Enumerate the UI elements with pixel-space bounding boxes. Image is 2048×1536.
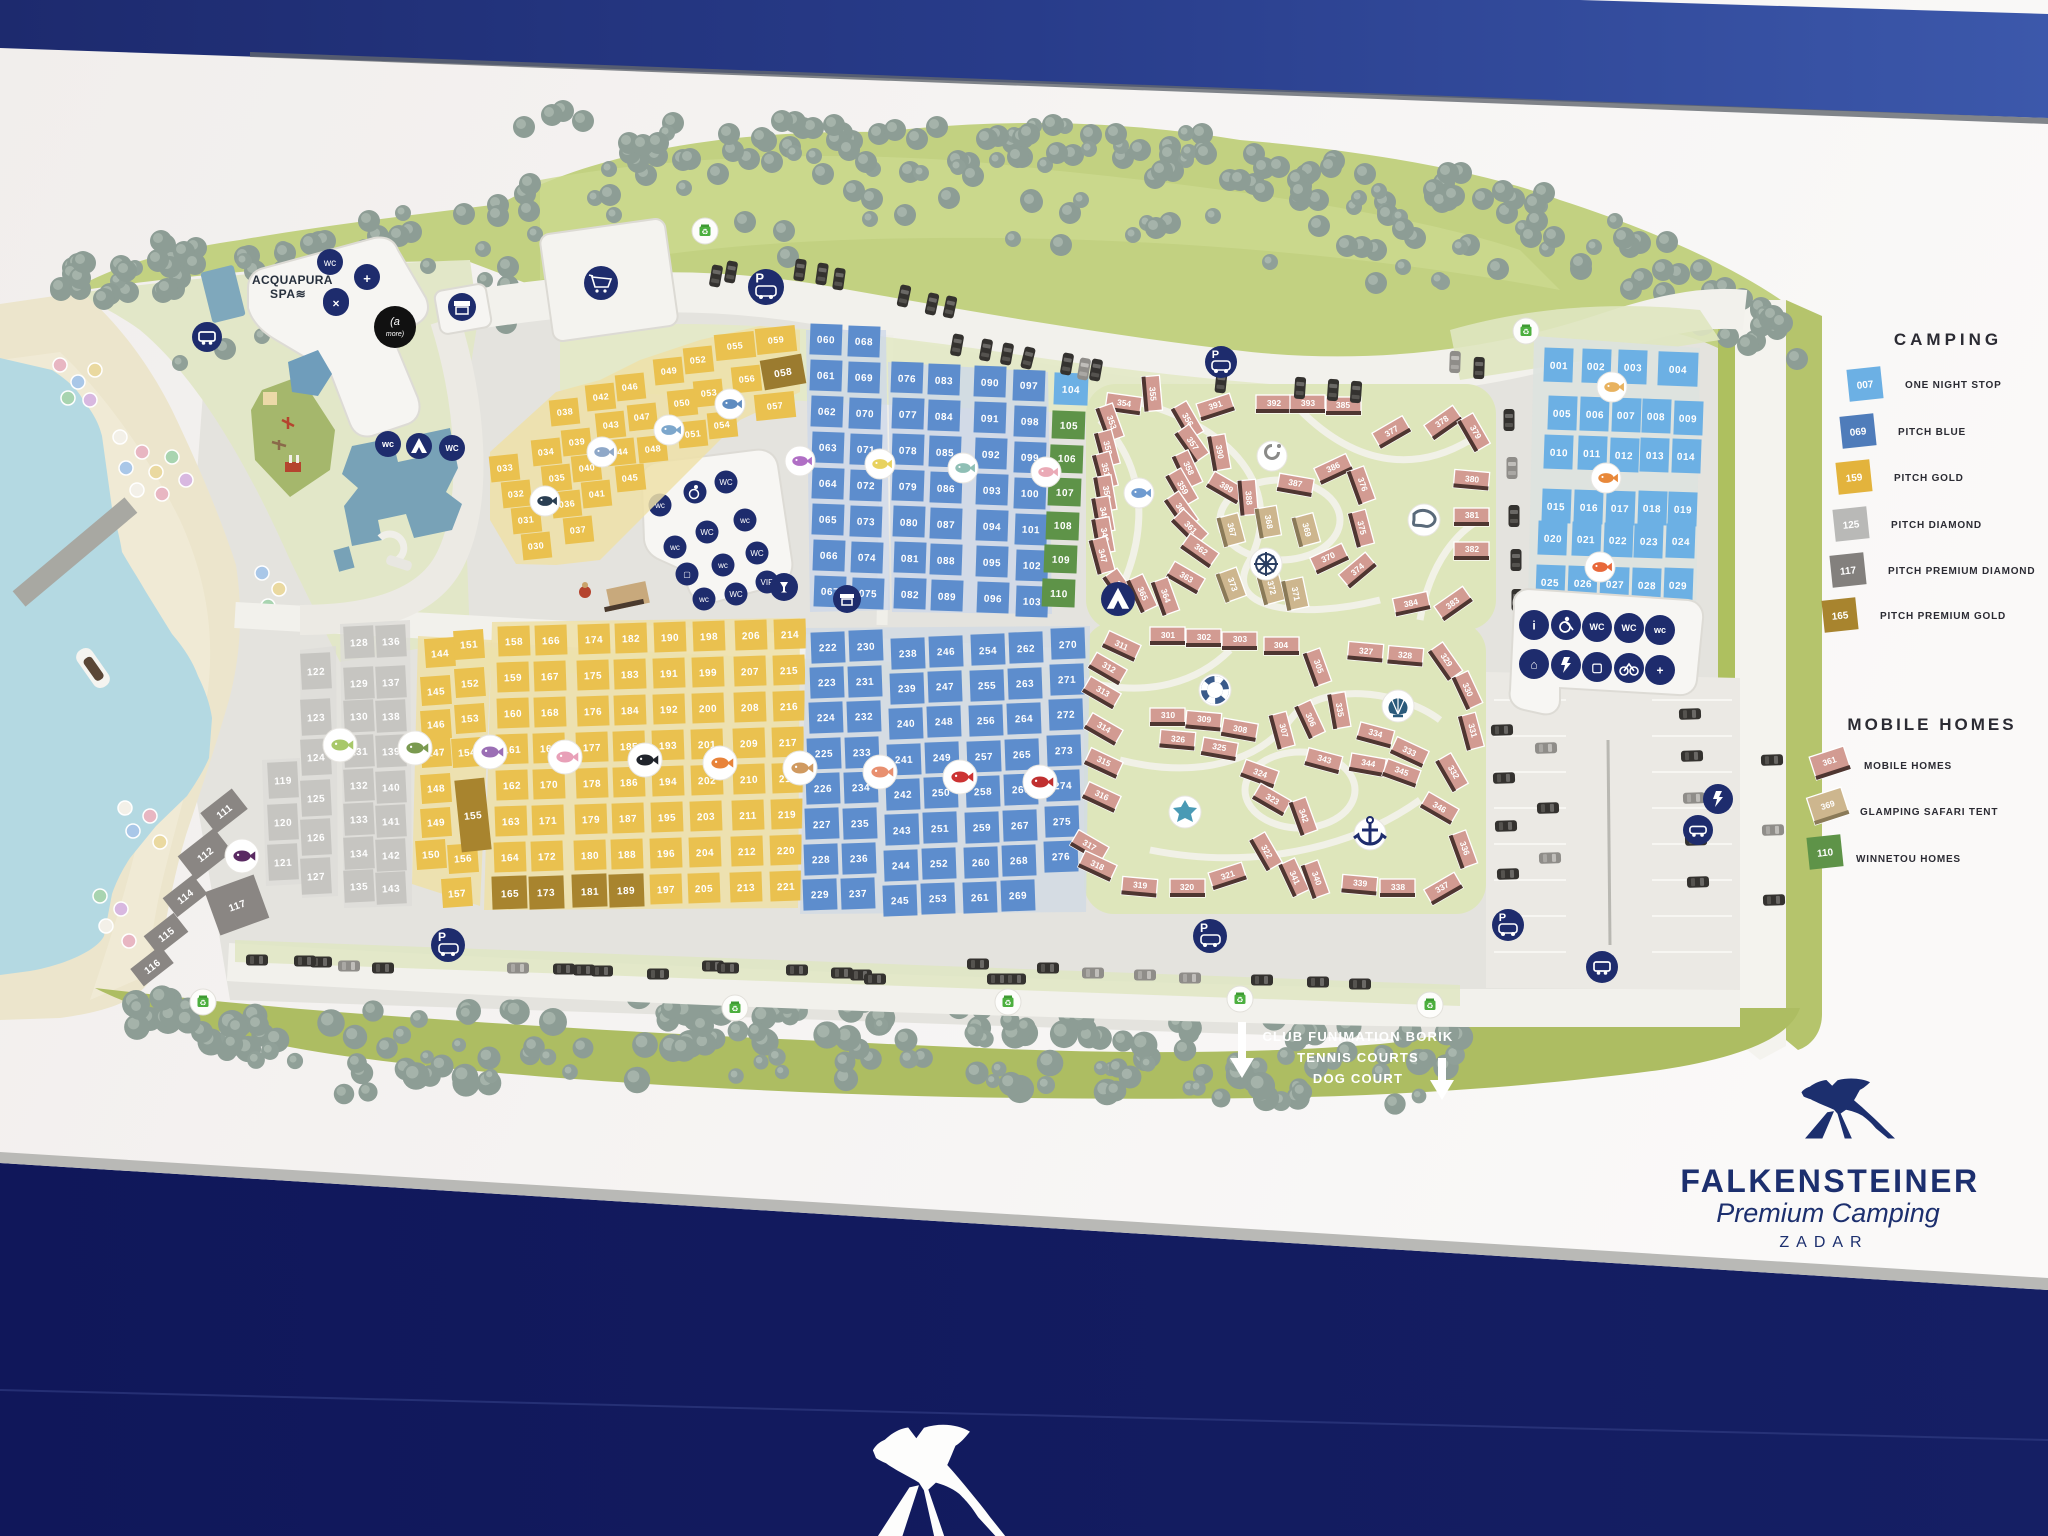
svg-text:122: 122 bbox=[307, 667, 326, 679]
svg-text:059: 059 bbox=[767, 334, 784, 346]
svg-text:304: 304 bbox=[1274, 640, 1288, 650]
svg-text:105: 105 bbox=[1060, 421, 1079, 433]
svg-text:084: 084 bbox=[935, 412, 954, 424]
svg-text:079: 079 bbox=[899, 482, 918, 494]
svg-text:060: 060 bbox=[817, 335, 836, 347]
svg-text:045: 045 bbox=[621, 472, 638, 484]
svg-text:061: 061 bbox=[817, 371, 836, 383]
svg-text:167: 167 bbox=[541, 672, 560, 684]
svg-text:150: 150 bbox=[422, 849, 441, 861]
svg-text:127: 127 bbox=[307, 872, 326, 884]
svg-text:023: 023 bbox=[1640, 537, 1659, 549]
svg-text:Premium Camping: Premium Camping bbox=[1716, 1198, 1940, 1228]
svg-text:230: 230 bbox=[857, 642, 876, 654]
svg-text:027: 027 bbox=[1606, 580, 1625, 592]
svg-text:199: 199 bbox=[699, 668, 718, 680]
svg-text:wc: wc bbox=[669, 543, 680, 552]
svg-text:248: 248 bbox=[935, 717, 954, 729]
svg-text:182: 182 bbox=[622, 634, 641, 646]
svg-text:258: 258 bbox=[974, 787, 993, 799]
svg-text:019: 019 bbox=[1674, 505, 1693, 517]
svg-text:262: 262 bbox=[1017, 644, 1036, 656]
svg-text:217: 217 bbox=[779, 738, 798, 750]
svg-text:137: 137 bbox=[382, 678, 401, 690]
svg-text:164: 164 bbox=[501, 853, 520, 865]
svg-text:181: 181 bbox=[581, 887, 600, 899]
svg-text:126: 126 bbox=[307, 833, 326, 845]
svg-text:009: 009 bbox=[1679, 414, 1698, 426]
svg-text:203: 203 bbox=[697, 812, 716, 824]
svg-text:097: 097 bbox=[1020, 381, 1039, 393]
svg-text:165: 165 bbox=[501, 889, 520, 901]
svg-text:026: 026 bbox=[1574, 579, 1593, 591]
svg-text:021: 021 bbox=[1577, 535, 1596, 547]
svg-text:091: 091 bbox=[981, 414, 1000, 426]
svg-text:179: 179 bbox=[582, 815, 601, 827]
svg-text:053: 053 bbox=[700, 387, 717, 399]
svg-text:103: 103 bbox=[1023, 597, 1042, 609]
svg-text:226: 226 bbox=[814, 784, 833, 796]
svg-text:031: 031 bbox=[517, 514, 534, 526]
svg-text:233: 233 bbox=[853, 748, 872, 760]
svg-text:063: 063 bbox=[819, 443, 838, 455]
svg-text:033: 033 bbox=[496, 462, 513, 474]
svg-text:024: 024 bbox=[1672, 537, 1691, 549]
svg-text:005: 005 bbox=[1553, 409, 1572, 421]
svg-text:101: 101 bbox=[1022, 525, 1041, 537]
svg-text:more): more) bbox=[386, 331, 404, 338]
svg-text:080: 080 bbox=[900, 518, 919, 530]
svg-text:i: i bbox=[1532, 618, 1535, 632]
svg-text:270: 270 bbox=[1059, 640, 1078, 652]
svg-text:022: 022 bbox=[1609, 536, 1628, 548]
svg-text:107: 107 bbox=[1056, 488, 1075, 500]
svg-text:110: 110 bbox=[1050, 589, 1068, 601]
svg-text:136: 136 bbox=[382, 637, 401, 649]
svg-text:225: 225 bbox=[815, 749, 834, 761]
svg-text:129: 129 bbox=[350, 679, 369, 691]
svg-text:192: 192 bbox=[660, 705, 679, 717]
svg-text:146: 146 bbox=[427, 719, 446, 731]
svg-text:193: 193 bbox=[659, 741, 678, 753]
svg-text:043: 043 bbox=[602, 419, 619, 431]
svg-text:046: 046 bbox=[621, 381, 638, 393]
svg-text:TENNIS COURTS: TENNIS COURTS bbox=[1297, 1050, 1419, 1065]
svg-text:229: 229 bbox=[811, 890, 830, 902]
svg-text:016: 016 bbox=[1580, 503, 1599, 515]
svg-text:145: 145 bbox=[427, 686, 446, 698]
svg-text:214: 214 bbox=[781, 630, 800, 642]
svg-text:254: 254 bbox=[979, 646, 998, 658]
svg-text:257: 257 bbox=[975, 752, 994, 764]
svg-text:051: 051 bbox=[684, 428, 701, 440]
svg-text:007: 007 bbox=[1856, 379, 1874, 392]
svg-text:056: 056 bbox=[738, 373, 755, 385]
svg-text:172: 172 bbox=[538, 852, 557, 864]
svg-text:WC: WC bbox=[750, 549, 764, 558]
svg-text:234: 234 bbox=[852, 783, 871, 795]
svg-text:▢: ▢ bbox=[683, 570, 691, 579]
svg-text:259: 259 bbox=[973, 823, 992, 835]
svg-text:075: 075 bbox=[859, 589, 878, 601]
svg-text:168: 168 bbox=[541, 708, 560, 720]
svg-text:319: 319 bbox=[1133, 879, 1148, 890]
svg-text:138: 138 bbox=[382, 712, 401, 724]
svg-text:018: 018 bbox=[1643, 504, 1662, 516]
svg-text:069: 069 bbox=[1849, 426, 1867, 439]
svg-text:088: 088 bbox=[937, 556, 956, 568]
svg-text:261: 261 bbox=[971, 893, 990, 905]
svg-text:310: 310 bbox=[1161, 710, 1175, 720]
svg-text:194: 194 bbox=[659, 777, 678, 789]
svg-text:238: 238 bbox=[899, 649, 918, 661]
svg-text:143: 143 bbox=[382, 884, 401, 896]
svg-text:302: 302 bbox=[1197, 632, 1211, 642]
svg-text:028: 028 bbox=[1638, 581, 1657, 593]
svg-text:030: 030 bbox=[527, 540, 544, 552]
svg-text:007: 007 bbox=[1617, 411, 1636, 423]
svg-text:149: 149 bbox=[427, 817, 446, 829]
svg-text:250: 250 bbox=[932, 788, 951, 800]
svg-text:152: 152 bbox=[461, 678, 480, 690]
svg-text:098: 098 bbox=[1021, 417, 1040, 429]
svg-text:110: 110 bbox=[1817, 847, 1835, 860]
svg-text:P: P bbox=[755, 271, 764, 286]
svg-text:160: 160 bbox=[504, 709, 523, 721]
svg-text:271: 271 bbox=[1058, 675, 1077, 687]
svg-text:ONE NIGHT STOP: ONE NIGHT STOP bbox=[1905, 380, 2002, 391]
svg-text:159: 159 bbox=[504, 673, 523, 685]
svg-text:232: 232 bbox=[855, 712, 874, 724]
svg-text:268: 268 bbox=[1010, 856, 1029, 868]
svg-text:069: 069 bbox=[855, 373, 874, 385]
svg-text:MOBILE HOMES: MOBILE HOMES bbox=[1864, 761, 1952, 772]
svg-text:156: 156 bbox=[454, 853, 473, 865]
svg-text:106: 106 bbox=[1058, 454, 1077, 466]
svg-text:076: 076 bbox=[898, 374, 917, 386]
svg-text:242: 242 bbox=[894, 790, 913, 802]
svg-text:327: 327 bbox=[1359, 645, 1374, 656]
svg-text:267: 267 bbox=[1011, 821, 1030, 833]
svg-text:074: 074 bbox=[858, 553, 877, 565]
svg-text:303: 303 bbox=[1233, 634, 1247, 644]
svg-text:176: 176 bbox=[584, 707, 603, 719]
svg-text:WC: WC bbox=[1622, 623, 1637, 633]
svg-text:064: 064 bbox=[819, 479, 838, 491]
svg-text:134: 134 bbox=[350, 849, 369, 861]
svg-text:142: 142 bbox=[382, 851, 401, 863]
svg-text:035: 035 bbox=[548, 472, 565, 484]
svg-text:wc: wc bbox=[1653, 625, 1666, 635]
svg-text:PITCH PREMIUM GOLD: PITCH PREMIUM GOLD bbox=[1880, 611, 2006, 622]
svg-text:PITCH GOLD: PITCH GOLD bbox=[1894, 473, 1964, 484]
svg-text:095: 095 bbox=[983, 558, 1002, 570]
svg-text:165: 165 bbox=[1831, 610, 1849, 623]
svg-text:212: 212 bbox=[738, 847, 757, 859]
svg-text:GLAMPING SAFARI TENT: GLAMPING SAFARI TENT bbox=[1860, 807, 1998, 818]
svg-text:WC: WC bbox=[700, 528, 714, 537]
svg-text:020: 020 bbox=[1544, 534, 1563, 546]
svg-text:328: 328 bbox=[1398, 649, 1413, 660]
svg-text:140: 140 bbox=[382, 783, 401, 795]
svg-text:013: 013 bbox=[1646, 451, 1665, 463]
svg-text:077: 077 bbox=[899, 410, 918, 422]
svg-text:175: 175 bbox=[584, 671, 603, 683]
svg-text:213: 213 bbox=[737, 883, 756, 895]
svg-text:240: 240 bbox=[897, 719, 916, 731]
svg-text:♻: ♻ bbox=[1236, 996, 1243, 1005]
svg-text:227: 227 bbox=[813, 820, 832, 832]
svg-text:184: 184 bbox=[621, 706, 640, 718]
svg-text:388: 388 bbox=[1243, 490, 1254, 505]
svg-text:014: 014 bbox=[1677, 452, 1696, 464]
svg-text:272: 272 bbox=[1057, 710, 1076, 722]
svg-text:178: 178 bbox=[583, 779, 602, 791]
svg-text:210: 210 bbox=[740, 775, 759, 787]
svg-text:WC: WC bbox=[729, 590, 743, 599]
svg-text:wc: wc bbox=[698, 595, 709, 604]
svg-text:057: 057 bbox=[766, 400, 783, 412]
svg-text:206: 206 bbox=[742, 631, 761, 643]
svg-text:245: 245 bbox=[891, 896, 910, 908]
svg-text:034: 034 bbox=[537, 446, 554, 458]
svg-text:CLUB FUNIMATION BORIK: CLUB FUNIMATION BORIK bbox=[1262, 1029, 1453, 1044]
svg-text:PITCH BLUE: PITCH BLUE bbox=[1898, 427, 1966, 438]
svg-text:246: 246 bbox=[937, 647, 956, 659]
svg-text:247: 247 bbox=[936, 682, 955, 694]
svg-text:ACQUAPURA: ACQUAPURA bbox=[252, 273, 333, 287]
svg-text:017: 017 bbox=[1611, 504, 1630, 516]
svg-text:042: 042 bbox=[592, 391, 609, 403]
svg-text:SPA≋: SPA≋ bbox=[270, 287, 306, 301]
svg-text:121: 121 bbox=[274, 858, 293, 870]
svg-text:153: 153 bbox=[461, 713, 480, 725]
svg-text:036: 036 bbox=[558, 498, 575, 510]
svg-text:032: 032 bbox=[507, 488, 524, 500]
svg-text:▢: ▢ bbox=[1591, 660, 1602, 674]
svg-text:151: 151 bbox=[460, 639, 479, 651]
svg-text:264: 264 bbox=[1015, 714, 1034, 726]
svg-text:255: 255 bbox=[978, 681, 997, 693]
svg-text:wc: wc bbox=[717, 561, 728, 570]
svg-text:(a: (a bbox=[390, 316, 400, 328]
svg-text:120: 120 bbox=[274, 818, 293, 830]
svg-text:002: 002 bbox=[1587, 362, 1606, 374]
svg-text:FALKENSTEINER: FALKENSTEINER bbox=[1680, 1163, 1979, 1199]
svg-text:141: 141 bbox=[382, 817, 401, 829]
svg-text:216: 216 bbox=[780, 702, 799, 714]
svg-text:123: 123 bbox=[307, 713, 326, 725]
svg-text:241: 241 bbox=[895, 755, 914, 767]
svg-text:189: 189 bbox=[617, 886, 636, 898]
svg-text:244: 244 bbox=[892, 861, 911, 873]
svg-text:222: 222 bbox=[819, 643, 838, 655]
svg-text:186: 186 bbox=[620, 778, 639, 790]
svg-text:wc: wc bbox=[739, 516, 750, 525]
svg-text:155: 155 bbox=[464, 810, 483, 823]
svg-text:070: 070 bbox=[856, 409, 875, 421]
svg-text:006: 006 bbox=[1586, 410, 1605, 422]
svg-text:WC: WC bbox=[445, 444, 459, 453]
svg-text:148: 148 bbox=[427, 783, 446, 795]
svg-text:239: 239 bbox=[898, 684, 917, 696]
svg-text:ZADAR: ZADAR bbox=[1779, 1234, 1868, 1251]
svg-text:WC: WC bbox=[719, 478, 733, 487]
svg-text:243: 243 bbox=[893, 826, 912, 838]
svg-text:WC: WC bbox=[1590, 622, 1605, 632]
svg-text:037: 037 bbox=[569, 524, 586, 536]
svg-text:+: + bbox=[1656, 663, 1663, 677]
svg-text:082: 082 bbox=[901, 590, 920, 602]
svg-text:208: 208 bbox=[741, 703, 760, 715]
svg-text:100: 100 bbox=[1021, 489, 1040, 501]
svg-text:183: 183 bbox=[621, 670, 640, 682]
svg-text:008: 008 bbox=[1647, 412, 1666, 424]
svg-text:124: 124 bbox=[307, 753, 326, 765]
svg-text:320: 320 bbox=[1180, 882, 1194, 892]
svg-text:159: 159 bbox=[1845, 472, 1863, 485]
svg-text:PITCH PREMIUM DIAMOND: PITCH PREMIUM DIAMOND bbox=[1888, 566, 2035, 577]
svg-text:163: 163 bbox=[502, 817, 521, 829]
svg-text:224: 224 bbox=[817, 713, 836, 725]
svg-text:073: 073 bbox=[857, 517, 876, 529]
svg-text:195: 195 bbox=[658, 813, 677, 825]
svg-text:P: P bbox=[438, 930, 446, 944]
svg-text:003: 003 bbox=[1624, 363, 1643, 375]
svg-text:236: 236 bbox=[850, 854, 869, 866]
svg-text:170: 170 bbox=[540, 780, 559, 792]
svg-text:029: 029 bbox=[1669, 581, 1688, 593]
svg-text:252: 252 bbox=[930, 859, 949, 871]
svg-text:125: 125 bbox=[307, 794, 326, 806]
svg-text:+: + bbox=[363, 271, 371, 286]
svg-text:×: × bbox=[332, 296, 339, 310]
svg-text:385: 385 bbox=[1336, 400, 1350, 410]
svg-text:P: P bbox=[1200, 921, 1208, 935]
svg-text:381: 381 bbox=[1465, 510, 1479, 520]
svg-text:⌂: ⌂ bbox=[1530, 657, 1537, 671]
svg-text:039: 039 bbox=[568, 436, 585, 448]
svg-text:200: 200 bbox=[699, 704, 718, 716]
svg-text:078: 078 bbox=[899, 446, 918, 458]
svg-text:171: 171 bbox=[539, 816, 558, 828]
svg-text:012: 012 bbox=[1615, 451, 1634, 463]
svg-text:215: 215 bbox=[780, 666, 799, 678]
svg-text:094: 094 bbox=[983, 522, 1002, 534]
svg-text:130: 130 bbox=[350, 712, 369, 724]
svg-text:180: 180 bbox=[581, 851, 600, 863]
svg-text:166: 166 bbox=[542, 636, 561, 648]
svg-text:085: 085 bbox=[936, 448, 955, 460]
svg-text:174: 174 bbox=[585, 635, 604, 647]
svg-text:054: 054 bbox=[713, 419, 730, 431]
svg-text:DOG COURT: DOG COURT bbox=[1313, 1071, 1403, 1086]
svg-text:251: 251 bbox=[931, 824, 950, 836]
svg-text:228: 228 bbox=[812, 855, 831, 867]
svg-text:093: 093 bbox=[983, 486, 1002, 498]
svg-text:041: 041 bbox=[588, 488, 605, 500]
svg-text:087: 087 bbox=[937, 520, 956, 532]
svg-text:253: 253 bbox=[929, 894, 948, 906]
svg-text:132: 132 bbox=[350, 781, 369, 793]
svg-text:393: 393 bbox=[1301, 398, 1315, 408]
svg-text:119: 119 bbox=[274, 776, 292, 788]
svg-text:096: 096 bbox=[984, 594, 1003, 606]
svg-text:WINNETOU HOMES: WINNETOU HOMES bbox=[1856, 854, 1961, 865]
svg-text:065: 065 bbox=[819, 515, 838, 527]
svg-text:133: 133 bbox=[350, 815, 369, 827]
svg-text:CAMPING: CAMPING bbox=[1894, 330, 2002, 349]
svg-text:157: 157 bbox=[448, 888, 467, 900]
svg-text:197: 197 bbox=[657, 885, 676, 897]
svg-text:221: 221 bbox=[777, 882, 796, 894]
svg-text:237: 237 bbox=[849, 889, 868, 901]
svg-text:265: 265 bbox=[1013, 750, 1032, 762]
svg-text:086: 086 bbox=[937, 484, 956, 496]
svg-text:355: 355 bbox=[1147, 386, 1158, 401]
svg-text:235: 235 bbox=[851, 819, 870, 831]
svg-text:♻: ♻ bbox=[1522, 328, 1529, 337]
svg-text:207: 207 bbox=[741, 667, 760, 679]
svg-text:wc: wc bbox=[323, 258, 336, 269]
svg-text:309: 309 bbox=[1197, 713, 1212, 724]
svg-text:♻: ♻ bbox=[701, 228, 708, 237]
svg-text:231: 231 bbox=[856, 677, 875, 689]
svg-text:125: 125 bbox=[1842, 519, 1860, 532]
svg-text:135: 135 bbox=[350, 882, 369, 894]
svg-text:191: 191 bbox=[660, 669, 679, 681]
svg-text:249: 249 bbox=[933, 753, 952, 765]
svg-text:081: 081 bbox=[901, 554, 920, 566]
svg-text:072: 072 bbox=[857, 481, 876, 493]
svg-text:wc: wc bbox=[381, 439, 394, 449]
svg-text:144: 144 bbox=[431, 648, 450, 660]
svg-text:083: 083 bbox=[935, 376, 954, 388]
svg-text:256: 256 bbox=[977, 716, 996, 728]
svg-text:276: 276 bbox=[1052, 852, 1071, 864]
svg-text:301: 301 bbox=[1161, 630, 1175, 640]
svg-text:MOBILE HOMES: MOBILE HOMES bbox=[1847, 715, 2016, 734]
svg-text:205: 205 bbox=[695, 884, 714, 896]
svg-text:102: 102 bbox=[1023, 561, 1042, 573]
svg-text:275: 275 bbox=[1053, 817, 1072, 829]
svg-text:187: 187 bbox=[619, 814, 638, 826]
svg-text:♻: ♻ bbox=[1004, 999, 1011, 1008]
svg-text:269: 269 bbox=[1009, 891, 1028, 903]
svg-text:♻: ♻ bbox=[731, 1005, 738, 1014]
svg-text:188: 188 bbox=[618, 850, 637, 862]
svg-text:173: 173 bbox=[537, 888, 556, 900]
svg-text:190: 190 bbox=[661, 633, 680, 645]
svg-text:219: 219 bbox=[778, 810, 797, 822]
svg-text:354: 354 bbox=[1116, 397, 1132, 409]
svg-text:177: 177 bbox=[583, 743, 602, 755]
svg-text:066: 066 bbox=[820, 551, 839, 563]
svg-text:015: 015 bbox=[1547, 502, 1566, 514]
svg-text:128: 128 bbox=[350, 638, 369, 650]
svg-text:104: 104 bbox=[1062, 385, 1081, 397]
svg-text:382: 382 bbox=[1465, 544, 1479, 554]
svg-text:158: 158 bbox=[505, 637, 524, 649]
svg-text:209: 209 bbox=[740, 739, 759, 751]
svg-text:089: 089 bbox=[938, 592, 957, 604]
svg-text:263: 263 bbox=[1016, 679, 1035, 691]
svg-text:049: 049 bbox=[660, 365, 677, 377]
svg-text:109: 109 bbox=[1052, 555, 1071, 567]
svg-text:380: 380 bbox=[1465, 473, 1480, 484]
svg-text:392: 392 bbox=[1267, 398, 1281, 408]
svg-text:055: 055 bbox=[726, 340, 743, 352]
